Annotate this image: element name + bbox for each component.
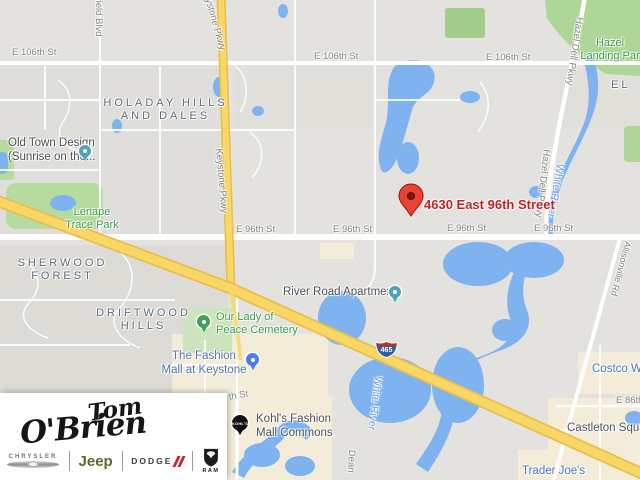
old-town-pin-icon[interactable] — [79, 145, 91, 157]
kohls-pin-text: KOHL'S — [232, 421, 248, 426]
street-label-e96th: E 96th St — [534, 223, 573, 234]
brand-divider — [192, 451, 193, 471]
interstate-465-number: 465 — [375, 347, 398, 354]
dodge-logo: DODGE — [131, 456, 183, 467]
destination-marker-icon[interactable] — [398, 183, 424, 217]
street-label-e106th: E 106th St — [486, 52, 530, 63]
street-label-e106th: E 106th St — [12, 47, 56, 58]
interstate-465-shield-icon: 465 — [375, 341, 398, 358]
chrysler-wing-icon — [6, 460, 60, 469]
neighborhood-label-partial: EL — [611, 79, 630, 92]
poi-label-trader-joes[interactable]: Trader Joe's — [522, 465, 585, 479]
jeep-logo: Jeep — [79, 453, 113, 470]
street-label-westfield-blvd: field Blvd — [93, 0, 104, 37]
neighborhood-label-driftwood-hills: DRIFTWOOD HILLS — [96, 307, 191, 333]
dodge-slashes-icon — [175, 456, 183, 467]
street-label-e86th: E 86th S — [616, 395, 640, 406]
cemetery-pin-icon[interactable] — [197, 315, 210, 328]
dealer-name-script-bottom: O'Brien — [19, 405, 148, 452]
brand-logo-row: CHRYSLER Jeep — [6, 447, 220, 475]
poi-label-castleton-square[interactable]: Castleton Squa — [567, 422, 640, 436]
neighborhood-label-holaday-hills: HOLADAY HILLS AND DALES — [93, 97, 238, 123]
poi-label-fashion-mall[interactable]: The Fashion Mall at Keystone — [148, 350, 260, 378]
chrysler-logo: CHRYSLER — [6, 454, 60, 469]
park-label-lenape-trace: Lenape Trace Park — [53, 206, 131, 232]
river-road-pin-icon[interactable] — [389, 286, 401, 298]
dealer-logo: Tom O'Brien CHRYSLER Jeep — [0, 393, 227, 480]
poi-label-river-road-apartments[interactable]: River Road Apartments — [283, 286, 402, 300]
street-label-e96th: E 96th St — [333, 224, 372, 235]
neighborhood-label-sherwood-forest: SHERWOOD FOREST — [15, 257, 110, 283]
map-viewport[interactable]: E 106th St E 106th St E 106th St E 96th … — [0, 0, 640, 480]
park-label-hazel-landing: Hazel Landing Par — [576, 37, 640, 63]
shopping-mall-pin-icon[interactable] — [246, 353, 259, 366]
street-label-e106th: E 106th St — [314, 51, 358, 62]
brand-divider — [122, 451, 123, 471]
brand-divider — [69, 451, 70, 471]
ram-wordmark: RAM — [202, 468, 219, 474]
street-label-e96th: E 96th St — [236, 224, 275, 235]
poi-label-kohls-fashion-mall[interactable]: Kohl's Fashion Mall Commons — [256, 413, 333, 441]
ram-shield-icon — [202, 448, 220, 467]
dodge-wordmark: DODGE — [131, 456, 172, 466]
poi-label-costco[interactable]: Costco Wh — [592, 363, 640, 377]
ram-logo: RAM — [202, 448, 220, 474]
destination-address-label: 4630 East 96th Street — [424, 197, 555, 213]
street-label-e96th: E 96th St — [447, 223, 486, 234]
kohls-pin-icon[interactable]: KOHL'S — [232, 415, 248, 431]
street-label-dean-rd: Dean — [345, 450, 357, 473]
jeep-wordmark: Jeep — [79, 453, 113, 470]
poi-label-cemetery[interactable]: Our Lady of Peace Cemetery — [216, 311, 298, 337]
